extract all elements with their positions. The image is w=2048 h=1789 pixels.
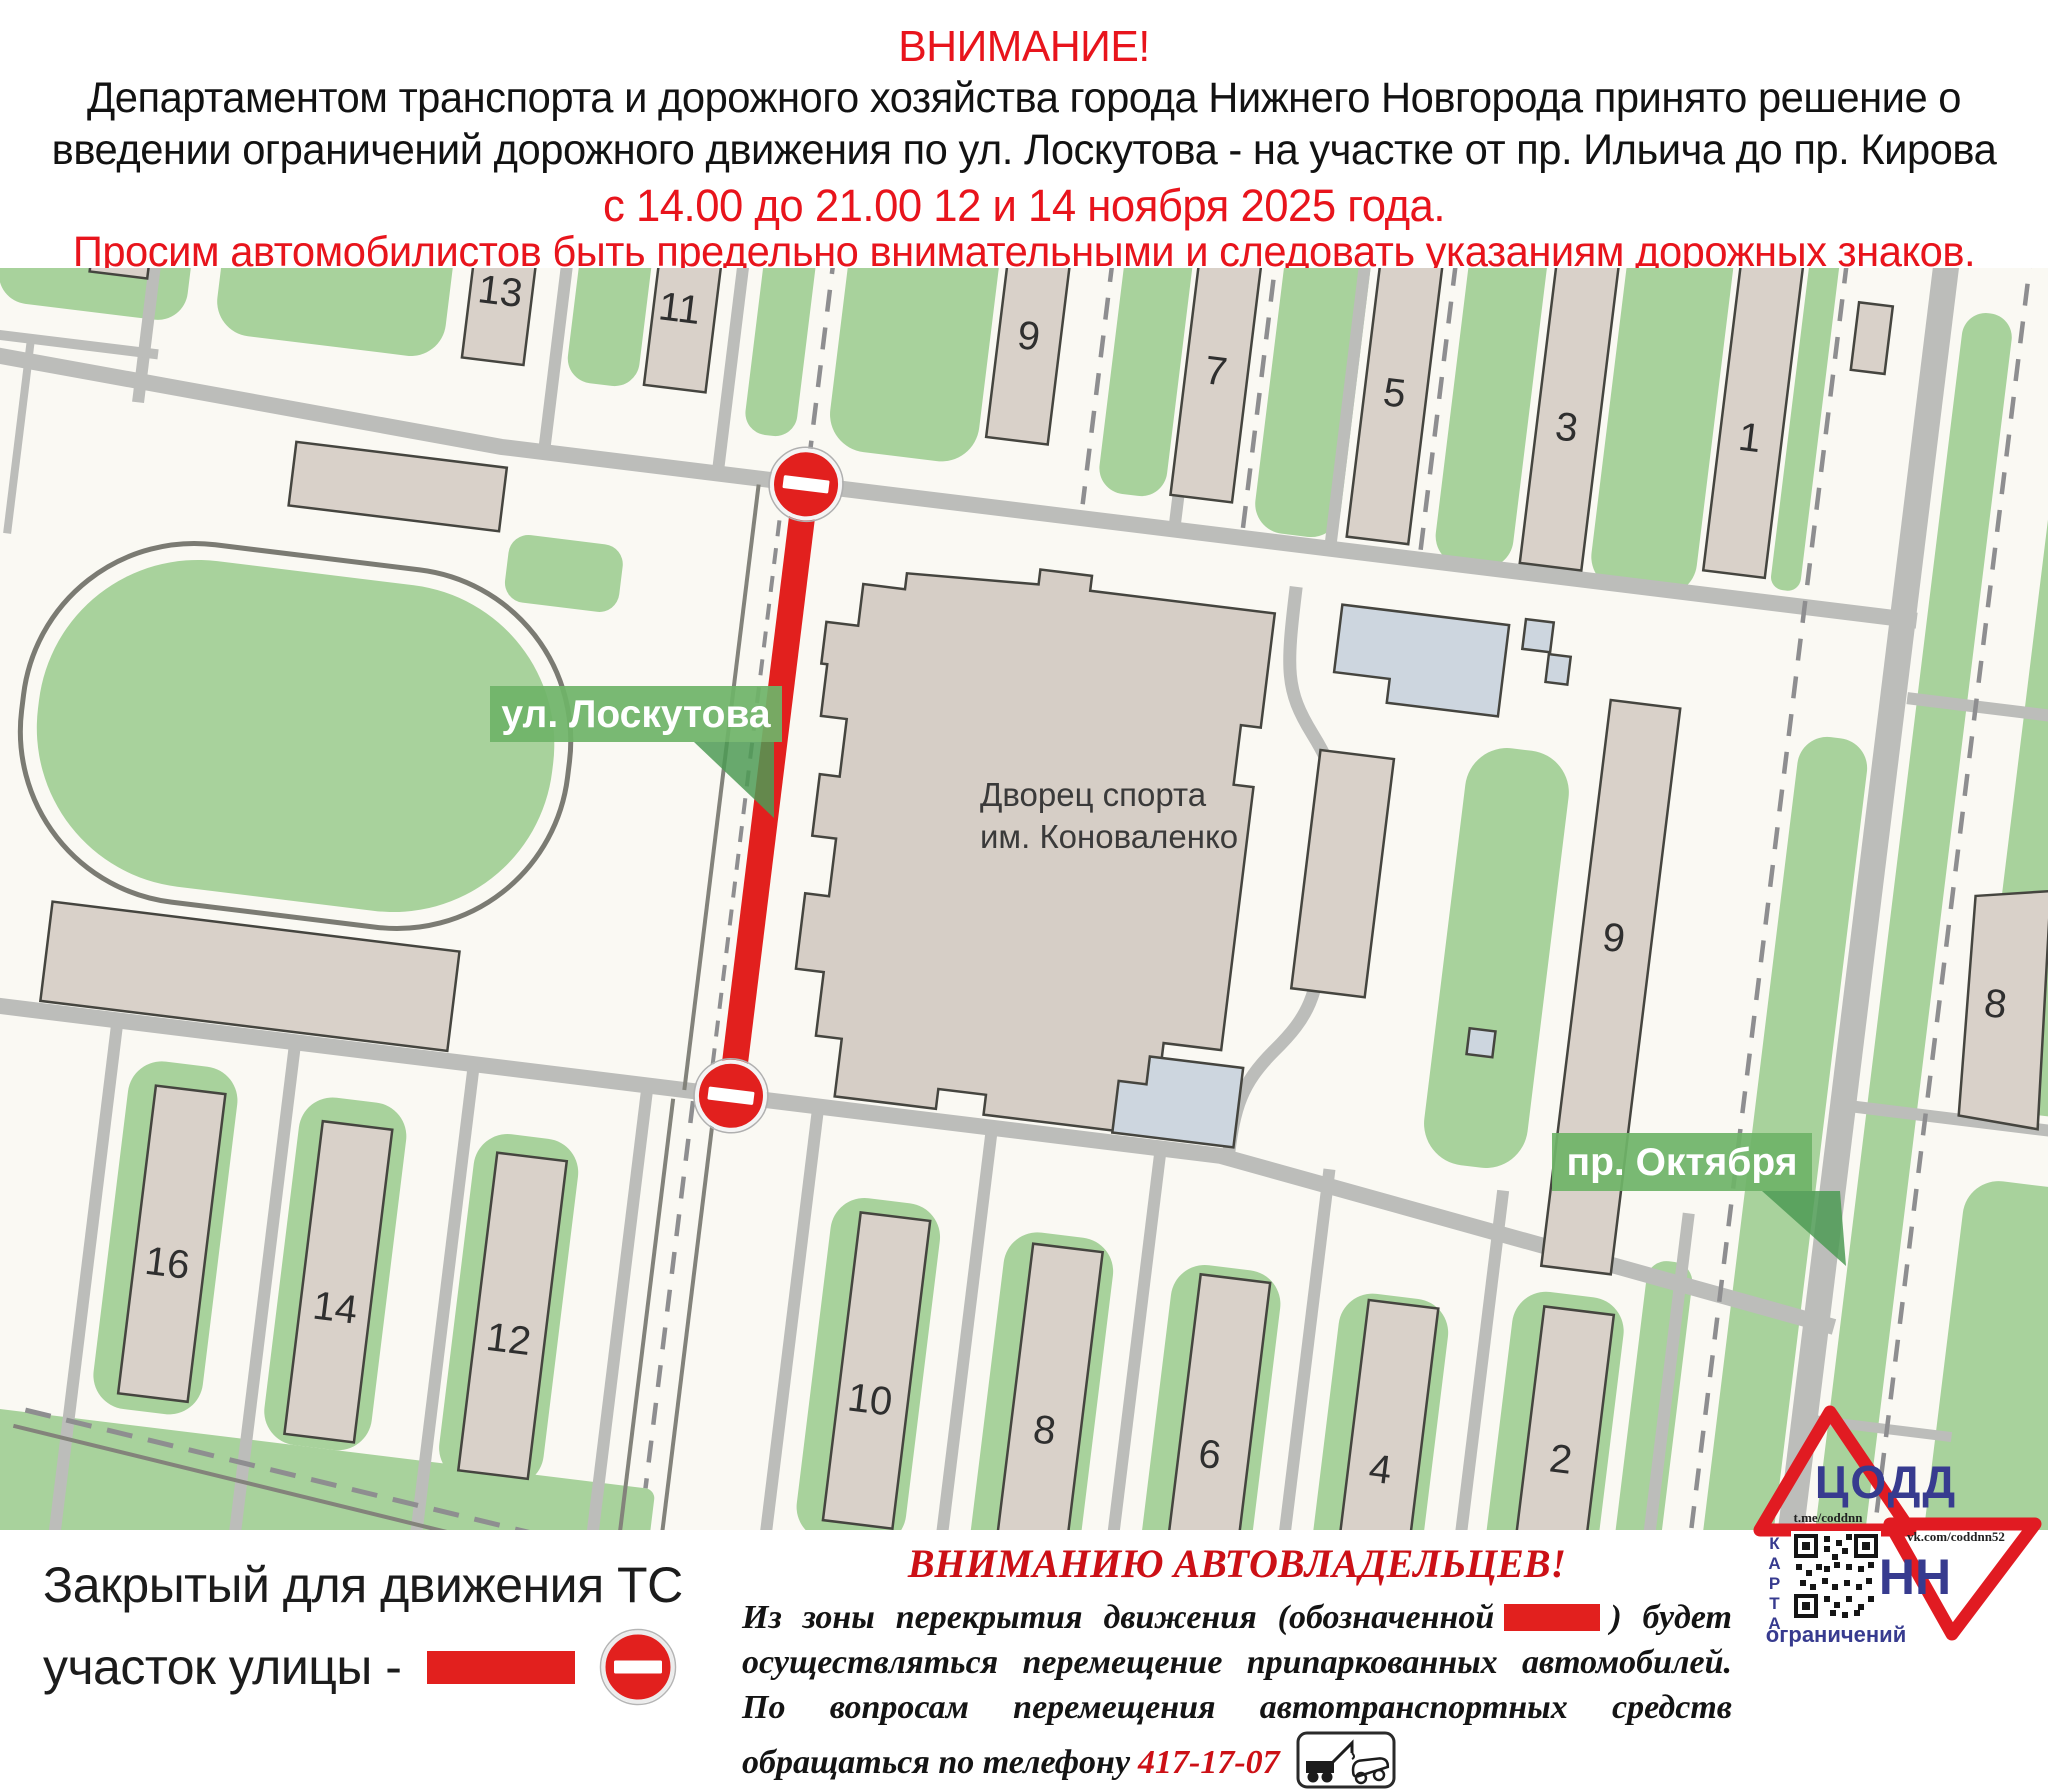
closed-segment-sample-bar [1504, 1604, 1600, 1631]
building-13-label: 13 [475, 268, 525, 316]
codd-logo: ЦОДД НН t.me/coddnn vk.com/coddnn52 [1740, 1382, 2048, 1668]
building-11-label: 11 [656, 284, 703, 333]
notice-text-before-bar: Из зоны перекрытия движения (обозначенно… [742, 1599, 1494, 1636]
header-dates-line: с 14.00 до 21.00 12 и 14 ноября 2025 год… [31, 180, 2018, 232]
building-12-label: 12 [484, 1315, 534, 1364]
building-16-label: 16 [143, 1239, 193, 1288]
city-map: 13 11 9 7 5 3 1 16 14 12 10 8 6 4 2 9 8 [0, 268, 2048, 1530]
owners-notice-title: ВНИМАНИЮ АВТОВЛАДЕЛЬЦЕВ! [742, 1540, 1732, 1587]
sports-palace-label-line1: Дворец спорта [980, 776, 1207, 813]
codd-telegram-link: t.me/coddnn [1794, 1510, 1864, 1525]
qr-code [1791, 1531, 1881, 1621]
owners-notice: ВНИМАНИЮ АВТОВЛАДЕЛЬЦЕВ! Из зоны перекры… [742, 1540, 1732, 1789]
no-entry-icon [599, 1628, 677, 1706]
closed-segment-sample-bar [427, 1651, 575, 1684]
building-14-label: 14 [310, 1284, 360, 1333]
legend: Закрытый для движения ТС участок улицы - [43, 1556, 683, 1706]
codd-restrictions-word: ограничений [1766, 1622, 1906, 1647]
owners-notice-body: Из зоны перекрытия движения (обозначенно… [742, 1595, 1732, 1789]
header-line-1: Департаментом транспорта и дорожного хоз… [31, 74, 2018, 123]
building-10-label: 10 [845, 1375, 895, 1424]
legend-line-1: Закрытый для движения ТС [43, 1556, 683, 1614]
tow-phone-number: 417-17-07 [1130, 1744, 1280, 1781]
street-label-oktyabrya-text: пр. Октября [1567, 1141, 1798, 1184]
codd-logo-city-text: НН [1879, 1549, 1951, 1605]
street-label-loskutova-text: ул. Лоскутова [501, 693, 771, 736]
road-closure-poster: { "header": { "title": "ВНИМАНИЕ!", "lin… [0, 0, 2048, 1719]
codd-vk-link: vk.com/coddnn52 [1907, 1529, 2005, 1544]
sports-palace-label-line2: им. Коноваленко [980, 818, 1238, 855]
tow-truck-icon [1296, 1731, 1396, 1789]
codd-map-word: КАРТА [1766, 1534, 1783, 1622]
header-line-2: введении ограничений дорожного движения … [31, 126, 2018, 175]
codd-logo-org-text: ЦОДД [1815, 1456, 1957, 1508]
header-attention-title: ВНИМАНИЕ! [31, 22, 2018, 72]
legend-line-2: участок улицы - [43, 1638, 401, 1696]
